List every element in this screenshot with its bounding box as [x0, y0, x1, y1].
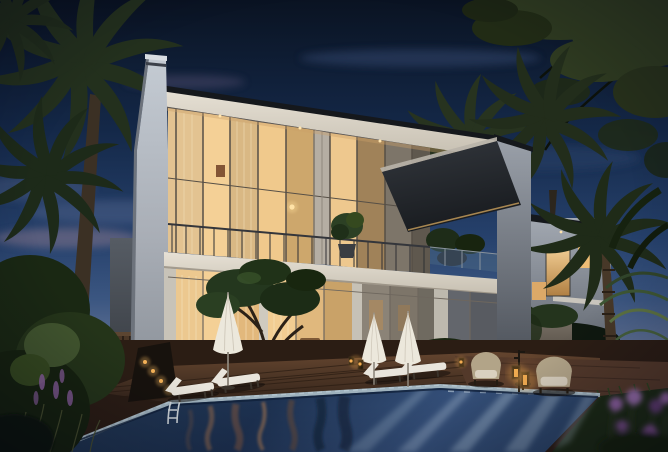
- rendering-canvas: Dusk architectural rendering of a modern…: [0, 0, 668, 452]
- vignette-overlay: [0, 0, 668, 452]
- villa-rendering: Dusk architectural rendering of a modern…: [0, 0, 668, 452]
